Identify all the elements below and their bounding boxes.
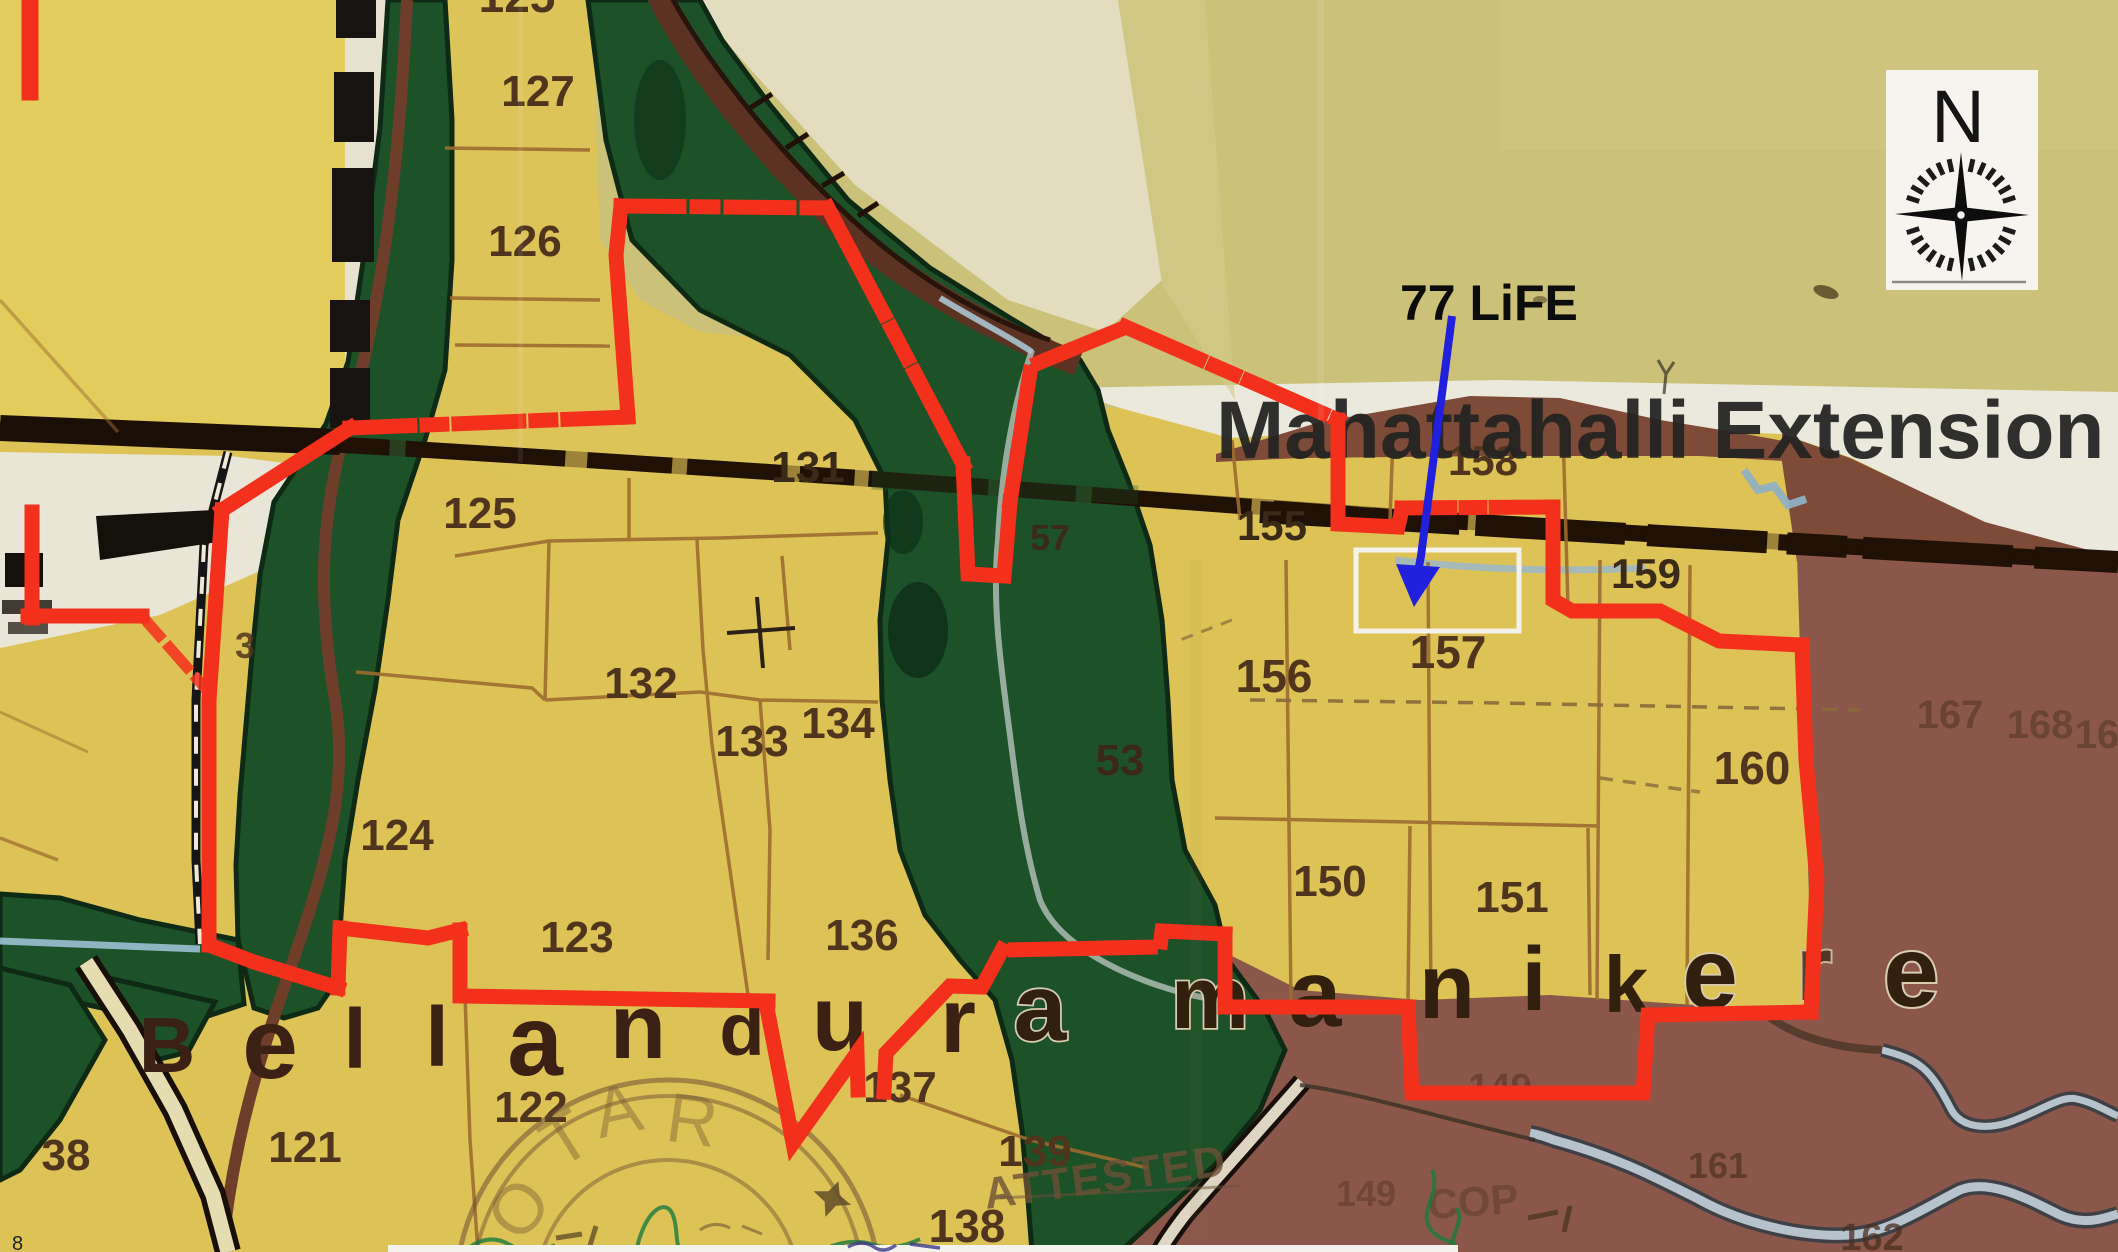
svg-text:156: 156 [1236,650,1313,702]
svg-text:157: 157 [1410,626,1487,678]
svg-text:137: 137 [863,1063,936,1112]
svg-text:123: 123 [540,913,613,962]
svg-text:m: m [1171,948,1249,1047]
svg-text:R: R [662,1078,723,1162]
svg-text:160: 160 [1714,742,1791,794]
svg-text:38: 38 [42,1131,91,1180]
svg-text:a: a [1014,955,1068,1061]
svg-text:i: i [1521,930,1546,1030]
svg-text:125: 125 [443,489,516,538]
svg-text:132: 132 [604,659,677,708]
svg-text:169: 169 [2075,713,2118,757]
svg-text:77 LiFE: 77 LiFE [1400,275,1578,331]
svg-text:Mahattahalli Extension: Mahattahalli Extension [1216,385,2105,476]
svg-text:131: 131 [771,443,844,492]
svg-text:126: 126 [488,217,561,266]
svg-text:N: N [1931,75,1984,158]
svg-text:134: 134 [801,699,875,748]
svg-text:162: 162 [1840,1217,1903,1252]
svg-text:159: 159 [1611,550,1681,597]
svg-text:e: e [242,988,298,1100]
svg-text:125: 125 [479,0,556,22]
svg-text:136: 136 [825,911,898,960]
svg-text:a: a [1289,941,1343,1047]
svg-text:150: 150 [1293,857,1366,906]
svg-text:B: B [139,1001,195,1089]
svg-text:155: 155 [1237,502,1307,549]
svg-text:151: 151 [1475,873,1548,922]
svg-text:121: 121 [268,1123,341,1172]
svg-text:l: l [425,990,448,1084]
svg-text:53: 53 [1096,736,1145,785]
svg-text:n: n [1419,936,1475,1038]
svg-text:133: 133 [715,717,788,766]
svg-text:168: 168 [2007,703,2074,747]
svg-text:57: 57 [1030,517,1070,558]
svg-text:3: 3 [235,625,255,666]
svg-text:149: 149 [1336,1173,1396,1214]
svg-text:8: 8 [12,1233,23,1252]
svg-text:127: 127 [501,67,574,116]
svg-text:COP: COP [1426,1175,1520,1228]
svg-text:124: 124 [360,811,434,860]
svg-text:l: l [343,992,366,1086]
svg-text:e: e [1883,916,1939,1028]
svg-text:167: 167 [1917,693,1984,737]
svg-text:161: 161 [1688,1145,1748,1186]
